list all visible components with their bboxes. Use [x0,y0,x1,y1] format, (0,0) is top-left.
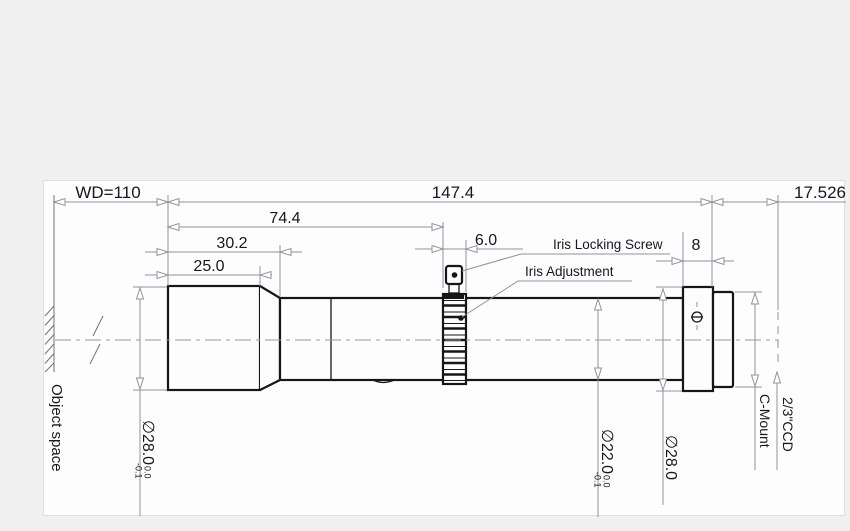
front-diameter-value: ∅28.0 [139,420,156,465]
mount-flange [683,287,713,391]
front-barrel [168,286,260,390]
main-barrel [280,298,683,380]
dim-total-length-label: 147.4 [432,183,475,202]
dimension-text: WD=110 147.4 17.526 74.4 30.2 25.0 6.0 8… [75,183,846,279]
dim-30-label: 30.2 [216,235,247,252]
technical-drawing-page: WD=110 147.4 17.526 74.4 30.2 25.0 6.0 8… [0,0,850,531]
dim-74-label: 74.4 [269,210,300,227]
vertical-text: Object space ∅28.0 0.0 -0.1 ∅22.0 0.0 -0… [48,384,796,488]
object-plane [45,195,54,372]
front-diameter-tol-lower: -0.1 [134,463,144,479]
dim-flange-width-label: 8 [692,237,701,254]
iris-locking-screw [444,266,464,299]
lens-drawing: WD=110 147.4 17.526 74.4 30.2 25.0 6.0 8… [0,0,850,531]
front-diameter-label: ∅28.0 0.0 -0.1 [134,420,157,479]
screw-dot [452,272,458,278]
dim-iris-width-label: 6.0 [475,232,497,249]
c-mount-label: C-Mount [757,394,773,448]
barrel-diameter-label: ∅22.0 0.0 -0.1 [593,429,616,488]
dim-flange-distance-label: 17.526 [794,183,846,202]
dim-25-label: 25.0 [193,258,224,275]
ccd-label: 2/3"CCD [780,397,796,452]
object-space-label: Object space [48,384,65,472]
iris-ring [443,294,466,384]
iris-locking-screw-label: Iris Locking Screw [553,237,663,252]
screw-base [444,293,464,299]
barrel-diameter-tol-lower: -0.1 [593,472,603,488]
iris-adjustment-label: Iris Adjustment [525,264,614,279]
barrel-diameter-value: ∅22.0 [598,429,615,474]
taper-section [260,286,280,390]
rear-diameter-value: ∅28.0 [662,435,679,480]
rear-diameter-label: ∅28.0 [662,435,679,480]
dim-wd-label: WD=110 [75,183,140,202]
